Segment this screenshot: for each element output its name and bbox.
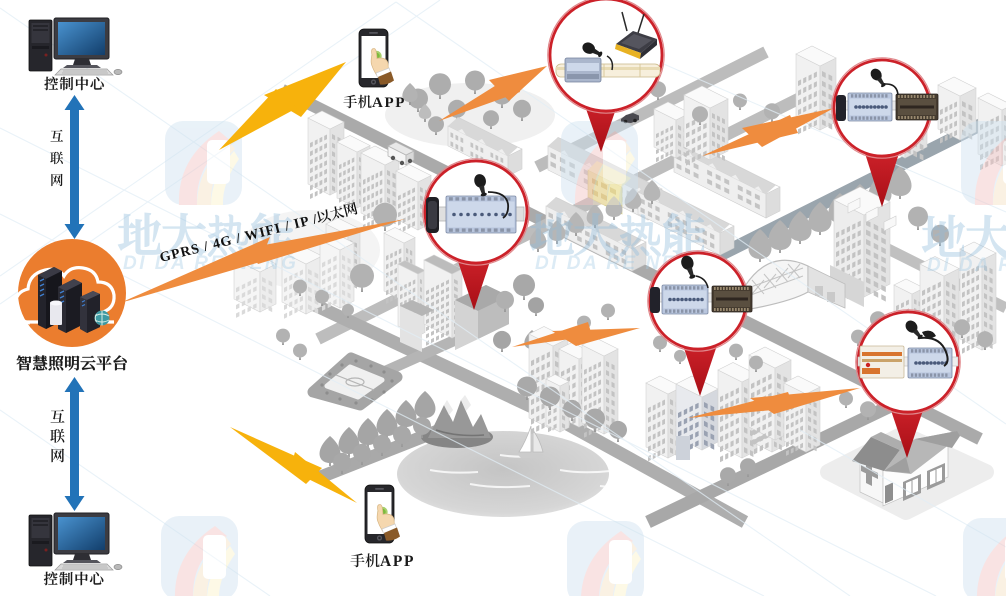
svg-text:DI DA RE NENG: DI DA RE NENG: [927, 255, 1006, 276]
svg-text:APP: APP: [380, 553, 414, 570]
svg-text:APP: APP: [372, 95, 404, 111]
